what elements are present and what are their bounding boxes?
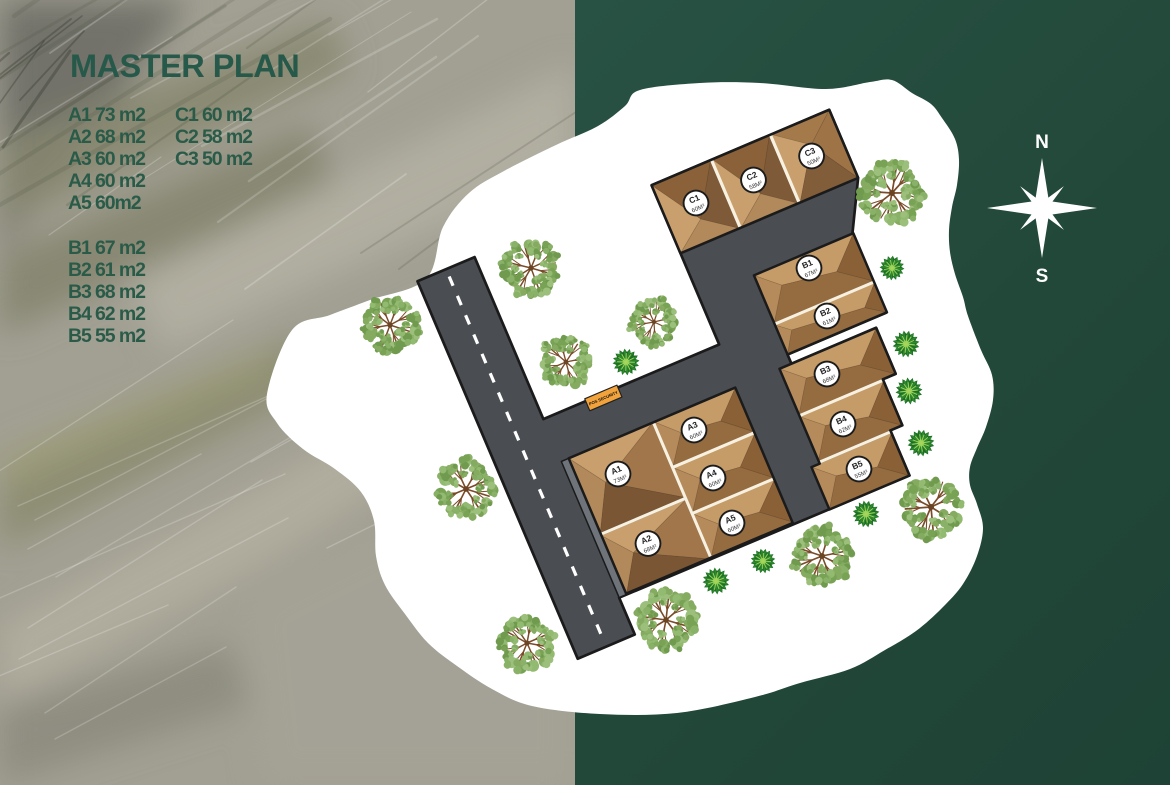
- svg-text:N: N: [1035, 132, 1049, 153]
- svg-text:S: S: [1036, 266, 1049, 287]
